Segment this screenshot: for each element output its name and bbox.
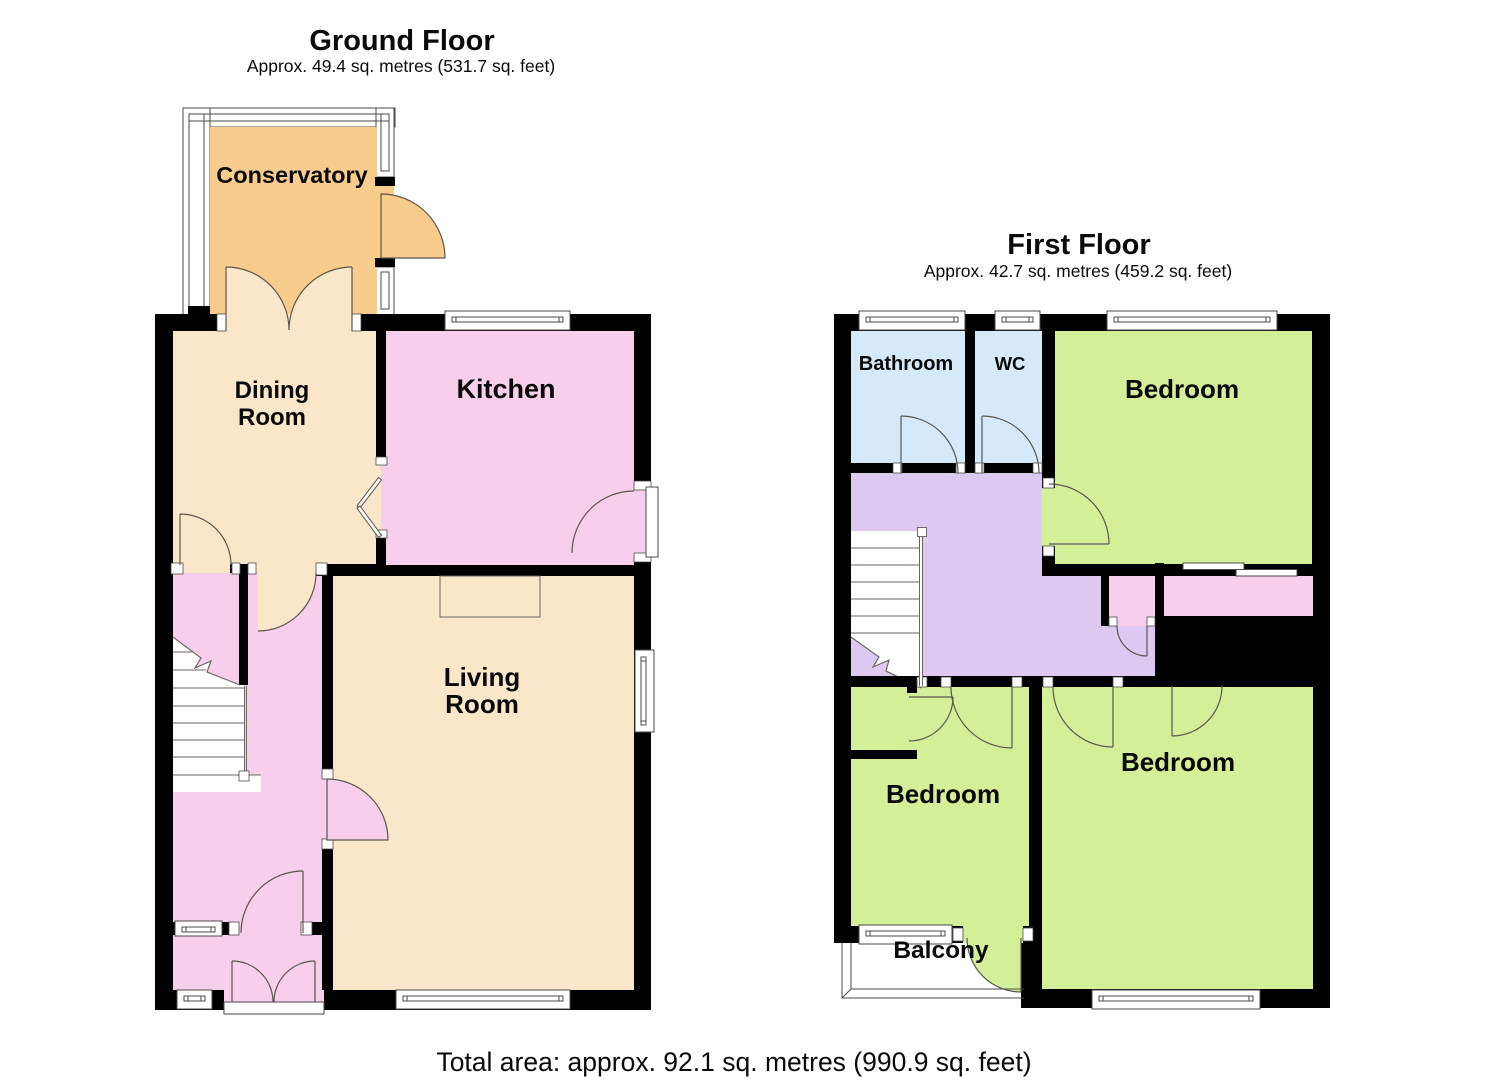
svg-text:Balcony: Balcony [893,937,989,964]
svg-text:First Floor: First Floor [1007,229,1150,261]
svg-text:Room: Room [445,689,519,719]
svg-text:Bedroom: Bedroom [1125,374,1239,404]
svg-text:Room: Room [238,404,306,431]
svg-text:Approx. 49.4 sq. metres (531.7: Approx. 49.4 sq. metres (531.7 sq. feet) [247,56,555,76]
svg-text:Total area: approx. 92.1 sq. m: Total area: approx. 92.1 sq. metres (990… [436,1047,1031,1077]
svg-text:Bedroom: Bedroom [1121,747,1235,777]
svg-text:Approx. 42.7 sq. metres (459.2: Approx. 42.7 sq. metres (459.2 sq. feet) [924,261,1232,281]
svg-text:WC: WC [995,353,1026,374]
svg-text:Bedroom: Bedroom [886,779,1000,809]
svg-text:Bathroom: Bathroom [859,353,953,375]
svg-text:Dining: Dining [235,377,310,404]
svg-text:Kitchen: Kitchen [456,374,555,404]
svg-text:Ground Floor: Ground Floor [309,25,494,57]
svg-text:Conservatory: Conservatory [216,162,368,188]
svg-text:Living: Living [444,662,521,692]
